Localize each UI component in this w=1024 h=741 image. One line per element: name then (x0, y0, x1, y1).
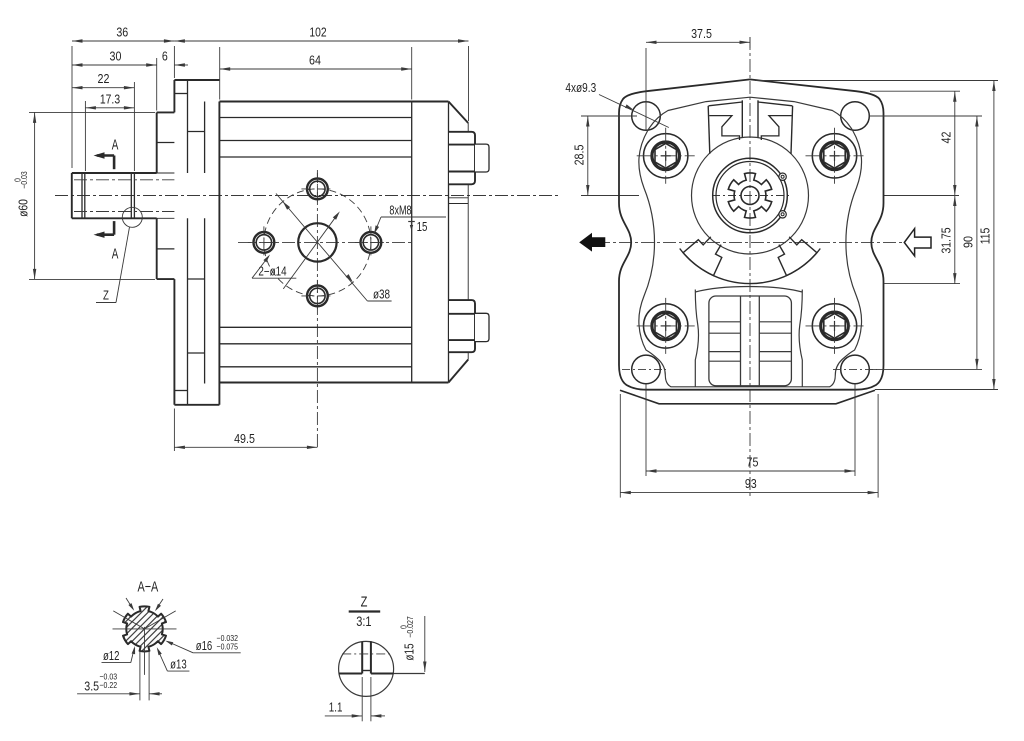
svg-text:Z: Z (361, 594, 368, 611)
svg-text:102: 102 (309, 25, 326, 40)
svg-text:3:1: 3:1 (356, 613, 371, 629)
svg-text:Z: Z (103, 288, 109, 303)
svg-text:90: 90 (960, 236, 975, 248)
svg-text:115: 115 (977, 228, 992, 245)
svg-text:15: 15 (417, 220, 428, 234)
svg-text:−0.027: −0.027 (405, 616, 415, 638)
svg-text:2−ø14: 2−ø14 (258, 265, 286, 279)
svg-text:A: A (112, 138, 119, 154)
svg-text:28.5: 28.5 (571, 145, 586, 166)
svg-text:ø13: ø13 (170, 657, 187, 671)
svg-text:17.3: 17.3 (100, 91, 120, 106)
svg-text:8xM8: 8xM8 (389, 204, 411, 218)
svg-text:4xø9.3: 4xø9.3 (565, 81, 596, 95)
svg-text:ø16: ø16 (196, 639, 213, 653)
svg-text:75: 75 (747, 455, 759, 470)
svg-text:42: 42 (938, 132, 953, 144)
svg-text:ø38: ø38 (373, 288, 390, 302)
svg-text:A−A: A−A (138, 579, 159, 596)
svg-text:3.5: 3.5 (84, 678, 99, 693)
svg-text:1.1: 1.1 (329, 700, 343, 715)
svg-text:ø12: ø12 (103, 649, 120, 663)
svg-text:30: 30 (110, 49, 122, 64)
svg-text:−0.03: −0.03 (19, 171, 29, 189)
svg-text:31.75: 31.75 (938, 227, 953, 253)
svg-text:−0.075: −0.075 (217, 642, 239, 652)
svg-text:36: 36 (116, 25, 128, 40)
svg-text:−0.22: −0.22 (100, 680, 118, 690)
svg-text:A: A (112, 247, 119, 263)
svg-text:64: 64 (309, 53, 321, 68)
svg-text:93: 93 (745, 476, 757, 491)
svg-text:6: 6 (162, 49, 168, 64)
svg-text:37.5: 37.5 (691, 26, 712, 41)
svg-text:ø60: ø60 (16, 199, 31, 217)
svg-text:49.5: 49.5 (234, 431, 255, 446)
svg-text:22: 22 (98, 71, 110, 86)
svg-text:ø15: ø15 (402, 643, 417, 660)
